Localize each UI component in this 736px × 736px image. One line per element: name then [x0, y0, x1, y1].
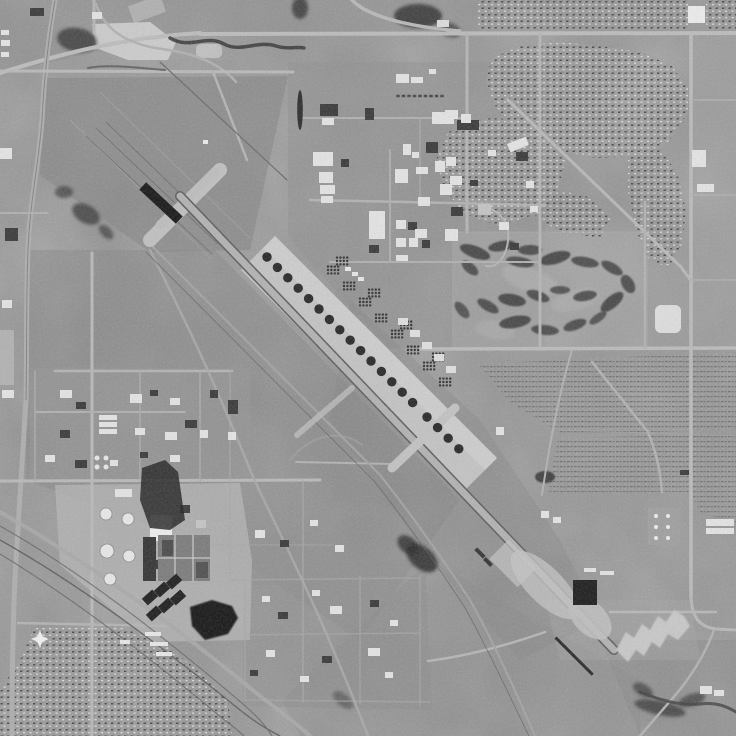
scene-layers — [0, 0, 736, 736]
airfield-satellite-image — [0, 0, 736, 736]
aerial-photograph — [0, 0, 736, 736]
